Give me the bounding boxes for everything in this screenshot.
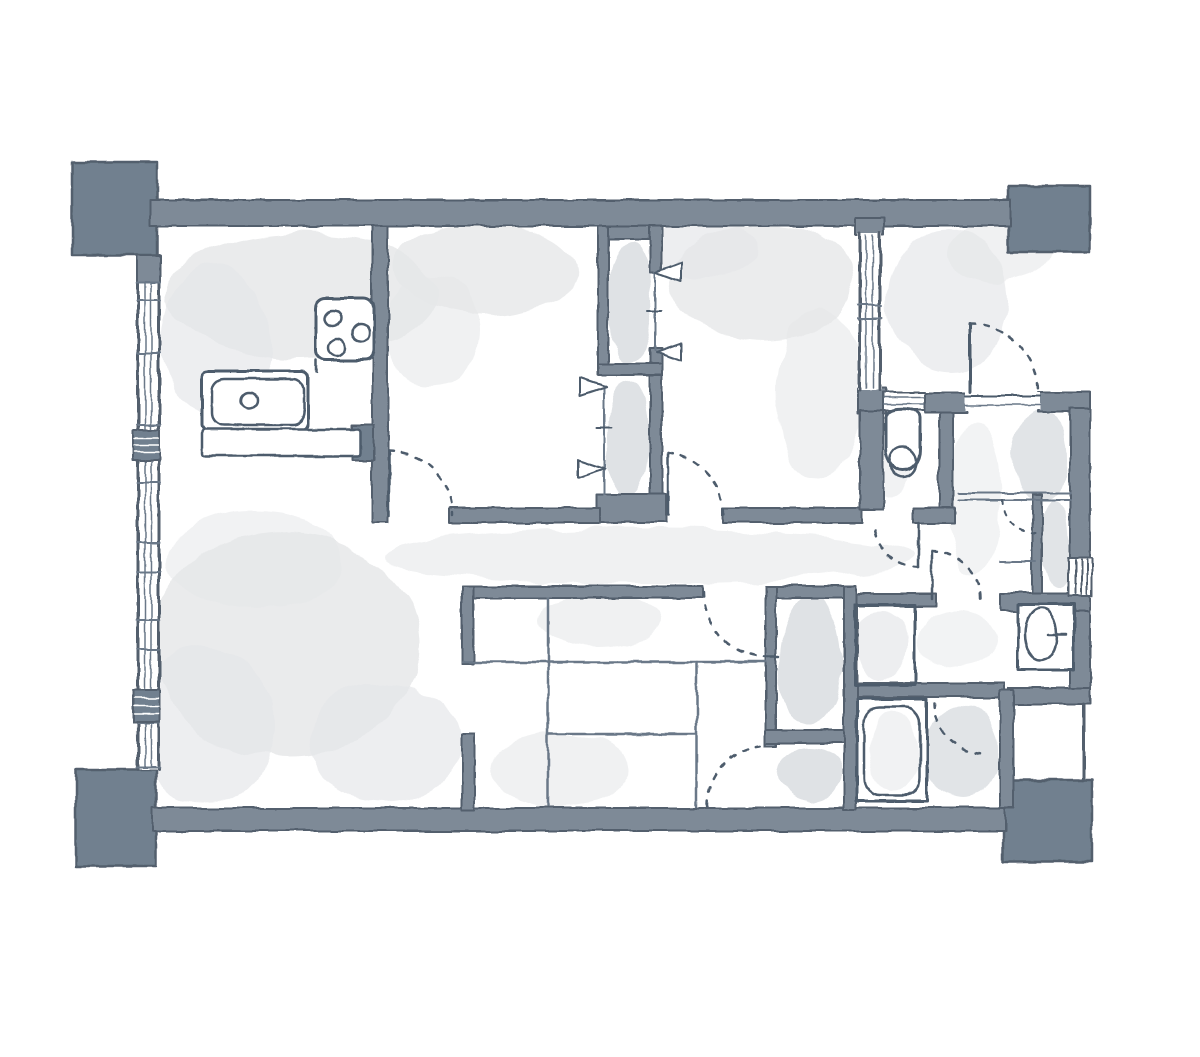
wall-tatami-north-left [462, 586, 702, 598]
wall-genkan-stub [1032, 495, 1042, 597]
washroom-wash-2 [918, 612, 998, 668]
genkan-wash [1013, 413, 1067, 503]
closet-lower-swing-mark-2 [578, 460, 605, 478]
wall-tatami-west-upper [462, 586, 473, 664]
closet-lower-wash [606, 380, 652, 496]
closet-east-wall-upper [650, 226, 662, 272]
wall-tatami-west-lower [462, 734, 475, 810]
wall-toilet-east [939, 410, 953, 516]
tatami-door-arc [703, 592, 768, 657]
tatami-closet-lower-wash [778, 749, 842, 803]
closet-divider [598, 364, 662, 375]
tatami-wash-1 [538, 594, 662, 646]
west-window-top-block [137, 255, 160, 283]
pillar-bottom-right [1003, 780, 1092, 862]
ldk-mid-wash [167, 512, 343, 608]
wall-toilet-south [913, 508, 955, 523]
wall-bottom [152, 808, 1005, 831]
closet-upper-wash [607, 238, 653, 362]
bedroom1-door-arc [389, 451, 453, 515]
closet-west-wall [598, 226, 608, 374]
tatami-wash-2 [490, 736, 630, 804]
wall-east-upper [1070, 408, 1090, 560]
wall-kitchen-bedroom1 [372, 226, 388, 522]
ldk-living-wash-3 [307, 684, 463, 800]
entrance-threshold [965, 392, 1040, 410]
pillar-top-left [72, 162, 157, 255]
bedroom1-wash-2 [384, 275, 480, 385]
bedroom2-window-band [858, 233, 882, 390]
wall-tatami-closet-west [766, 586, 776, 746]
closet-bottom-block [596, 494, 666, 522]
kitchen-counter [202, 429, 360, 456]
tatami-closet-door-arc [707, 745, 768, 806]
wall-pocket-west [1000, 690, 1014, 808]
bedroom2-door-arc [668, 453, 723, 515]
wall-toilet-west [860, 410, 883, 510]
pillar-top-right [1008, 186, 1090, 252]
wall-pocket-top [1008, 688, 1090, 704]
tatami-closet-upper-wash [778, 597, 842, 723]
bathtub-wash [868, 710, 916, 790]
washroom-wash-1 [855, 611, 909, 679]
pillar-bottom-left [76, 770, 156, 866]
corridor-wash [385, 530, 915, 584]
wall-bedroom1-south [450, 508, 600, 523]
wall-tatami-closet-divider [766, 730, 856, 743]
floor-plan-page: Hand-drawn watercolor apartment floor pl… [0, 0, 1200, 1057]
closet-lower-swing-mark-1 [580, 378, 607, 396]
floor-plan-canvas [0, 0, 1200, 1057]
bedroom2-wash-2 [775, 307, 865, 477]
floor-plan-drawing [72, 162, 1092, 866]
wall-toilet-top-block [925, 393, 967, 412]
wall-tatami-north-right [766, 586, 854, 598]
wall-bedroom2-south [722, 508, 862, 523]
genkan-closet-door-arc [1002, 500, 1035, 533]
